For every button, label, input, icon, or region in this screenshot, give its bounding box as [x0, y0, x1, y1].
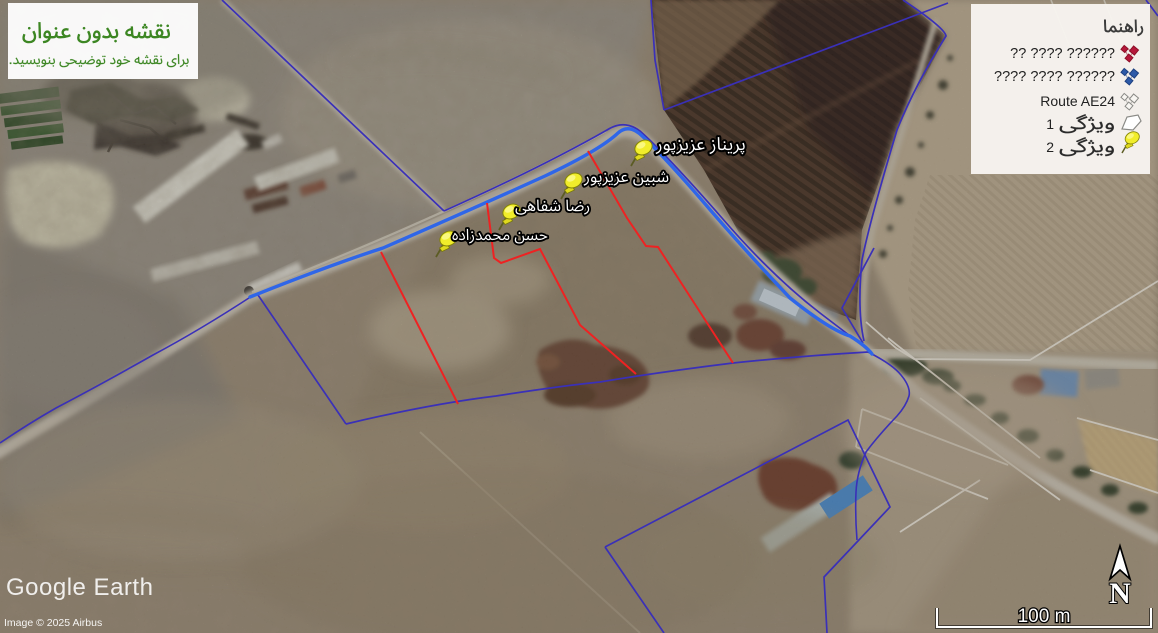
svg-text:Google Earth: Google Earth — [6, 574, 153, 601]
svg-text:N: N — [1109, 577, 1131, 610]
svg-text:Route AE24: Route AE24 — [1040, 93, 1115, 109]
svg-text:?? ???? ??????: ?? ???? ?????? — [1010, 46, 1115, 62]
svg-text:2: 2 — [1046, 139, 1054, 155]
svg-text:1: 1 — [1046, 116, 1054, 132]
svg-text:100 m: 100 m — [1018, 606, 1071, 627]
svg-text:???? ???? ??????: ???? ???? ?????? — [994, 69, 1115, 85]
svg-text:Image © 2025 Airbus: Image © 2025 Airbus — [4, 617, 102, 629]
